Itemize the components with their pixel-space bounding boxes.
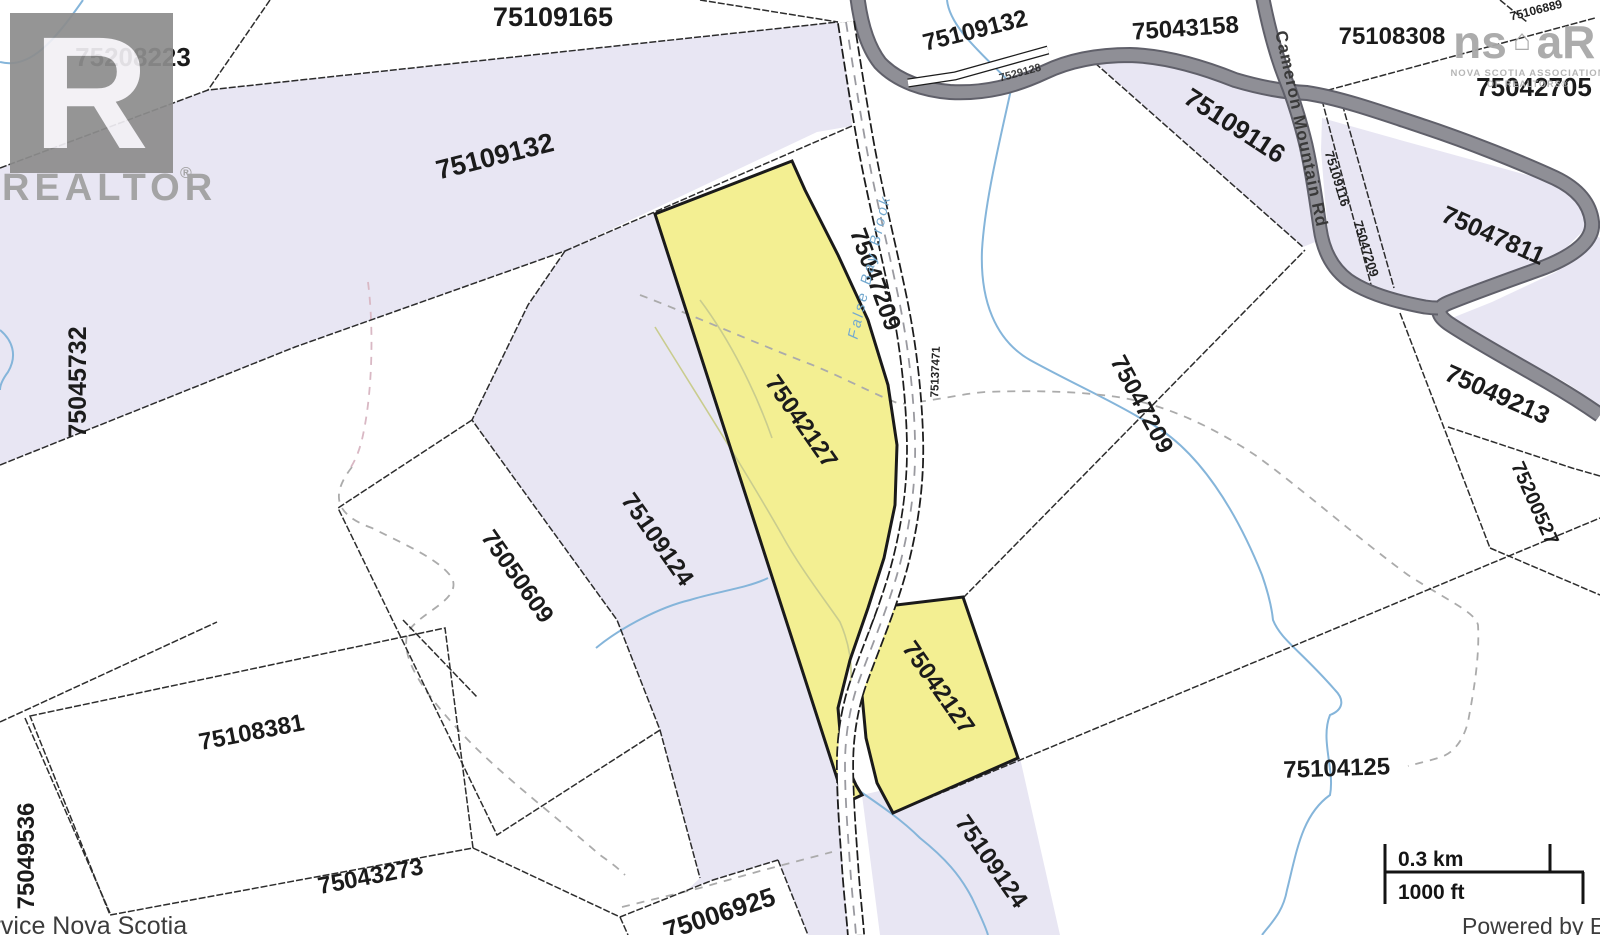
realtor-logo-r-icon: R bbox=[33, 3, 149, 182]
nsar-logo-house-icon: ⌂ bbox=[1513, 24, 1531, 57]
realtor-registered-mark: ® bbox=[180, 165, 197, 182]
scale-km-label: 0.3 km bbox=[1398, 848, 1463, 871]
parcel-label-75108308: 75108308 bbox=[1339, 23, 1446, 50]
credit-service-nova-scotia: Service Nova Scotia bbox=[0, 912, 187, 935]
nsar-subtext-2: OF REALTORS® bbox=[1487, 79, 1569, 89]
nsar-logo-ns: ns bbox=[1453, 16, 1507, 68]
nsar-logo-ar: aR bbox=[1537, 16, 1596, 68]
nsar-subtext-1: NOVA SCOTIA ASSOCIATION bbox=[1450, 68, 1600, 79]
parcel-map: 75208223 75109165 75109132 75109132 7504… bbox=[0, 0, 1600, 935]
scale-ft-label: 1000 ft bbox=[1398, 881, 1465, 904]
parcel-label-75137471: 75137471 bbox=[929, 346, 943, 398]
property-map-canvas: 75208223 75109165 75109132 75109132 7504… bbox=[0, 0, 1600, 935]
parcel-label-75104125: 75104125 bbox=[1283, 753, 1391, 784]
parcel-label-75049536: 75049536 bbox=[13, 803, 40, 910]
parcel-label-75109165: 75109165 bbox=[493, 2, 613, 32]
nsar-watermark: ns ⌂ aR NOVA SCOTIA ASSOCIATION OF REALT… bbox=[1450, 16, 1600, 89]
parcel-label-75045732: 75045732 bbox=[64, 326, 92, 437]
credit-powered-by-esri: Powered by Esri bbox=[1462, 913, 1600, 935]
